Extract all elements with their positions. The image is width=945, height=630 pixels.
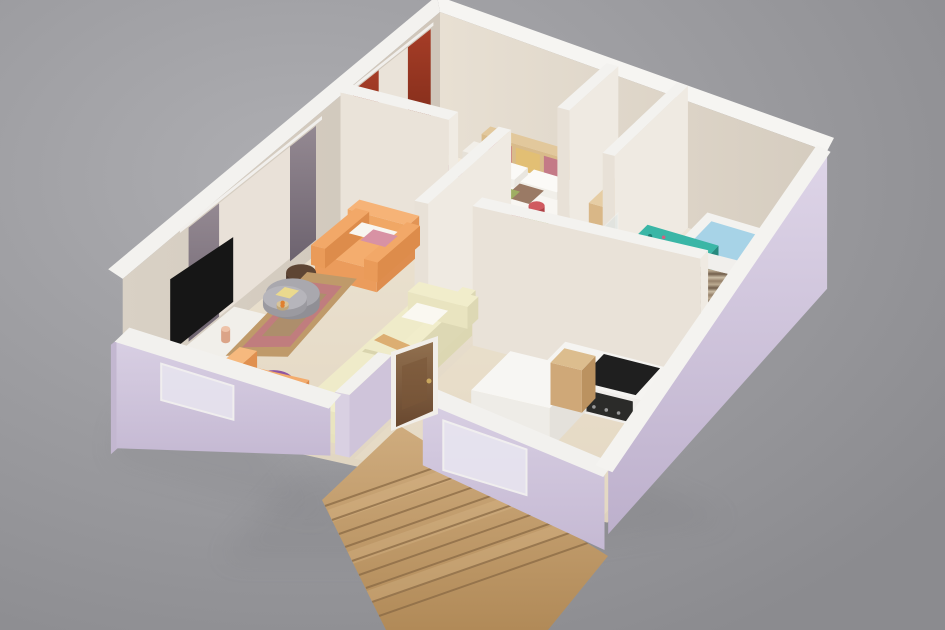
render-canvas: [0, 0, 945, 630]
apartment-floorplan-3d-render: [0, 0, 945, 630]
oven-knobs-1: [592, 405, 596, 409]
door-knob-0: [427, 379, 432, 384]
figurine-top: [221, 326, 230, 332]
porch-jamb-wall-side-sw: [335, 392, 349, 458]
armchair-arm-right-side-sw: [364, 259, 378, 283]
living-curtain-panel-left: [290, 126, 316, 262]
kitchen-chair-side-sw: [551, 363, 582, 413]
fruit-oranges-1: [280, 303, 284, 307]
armchair-arm-left-side-sw: [311, 245, 325, 268]
teal-tile-dots-pink-0: [662, 235, 666, 239]
oven-knobs-2: [604, 408, 608, 412]
oven-knobs-3: [617, 411, 621, 415]
